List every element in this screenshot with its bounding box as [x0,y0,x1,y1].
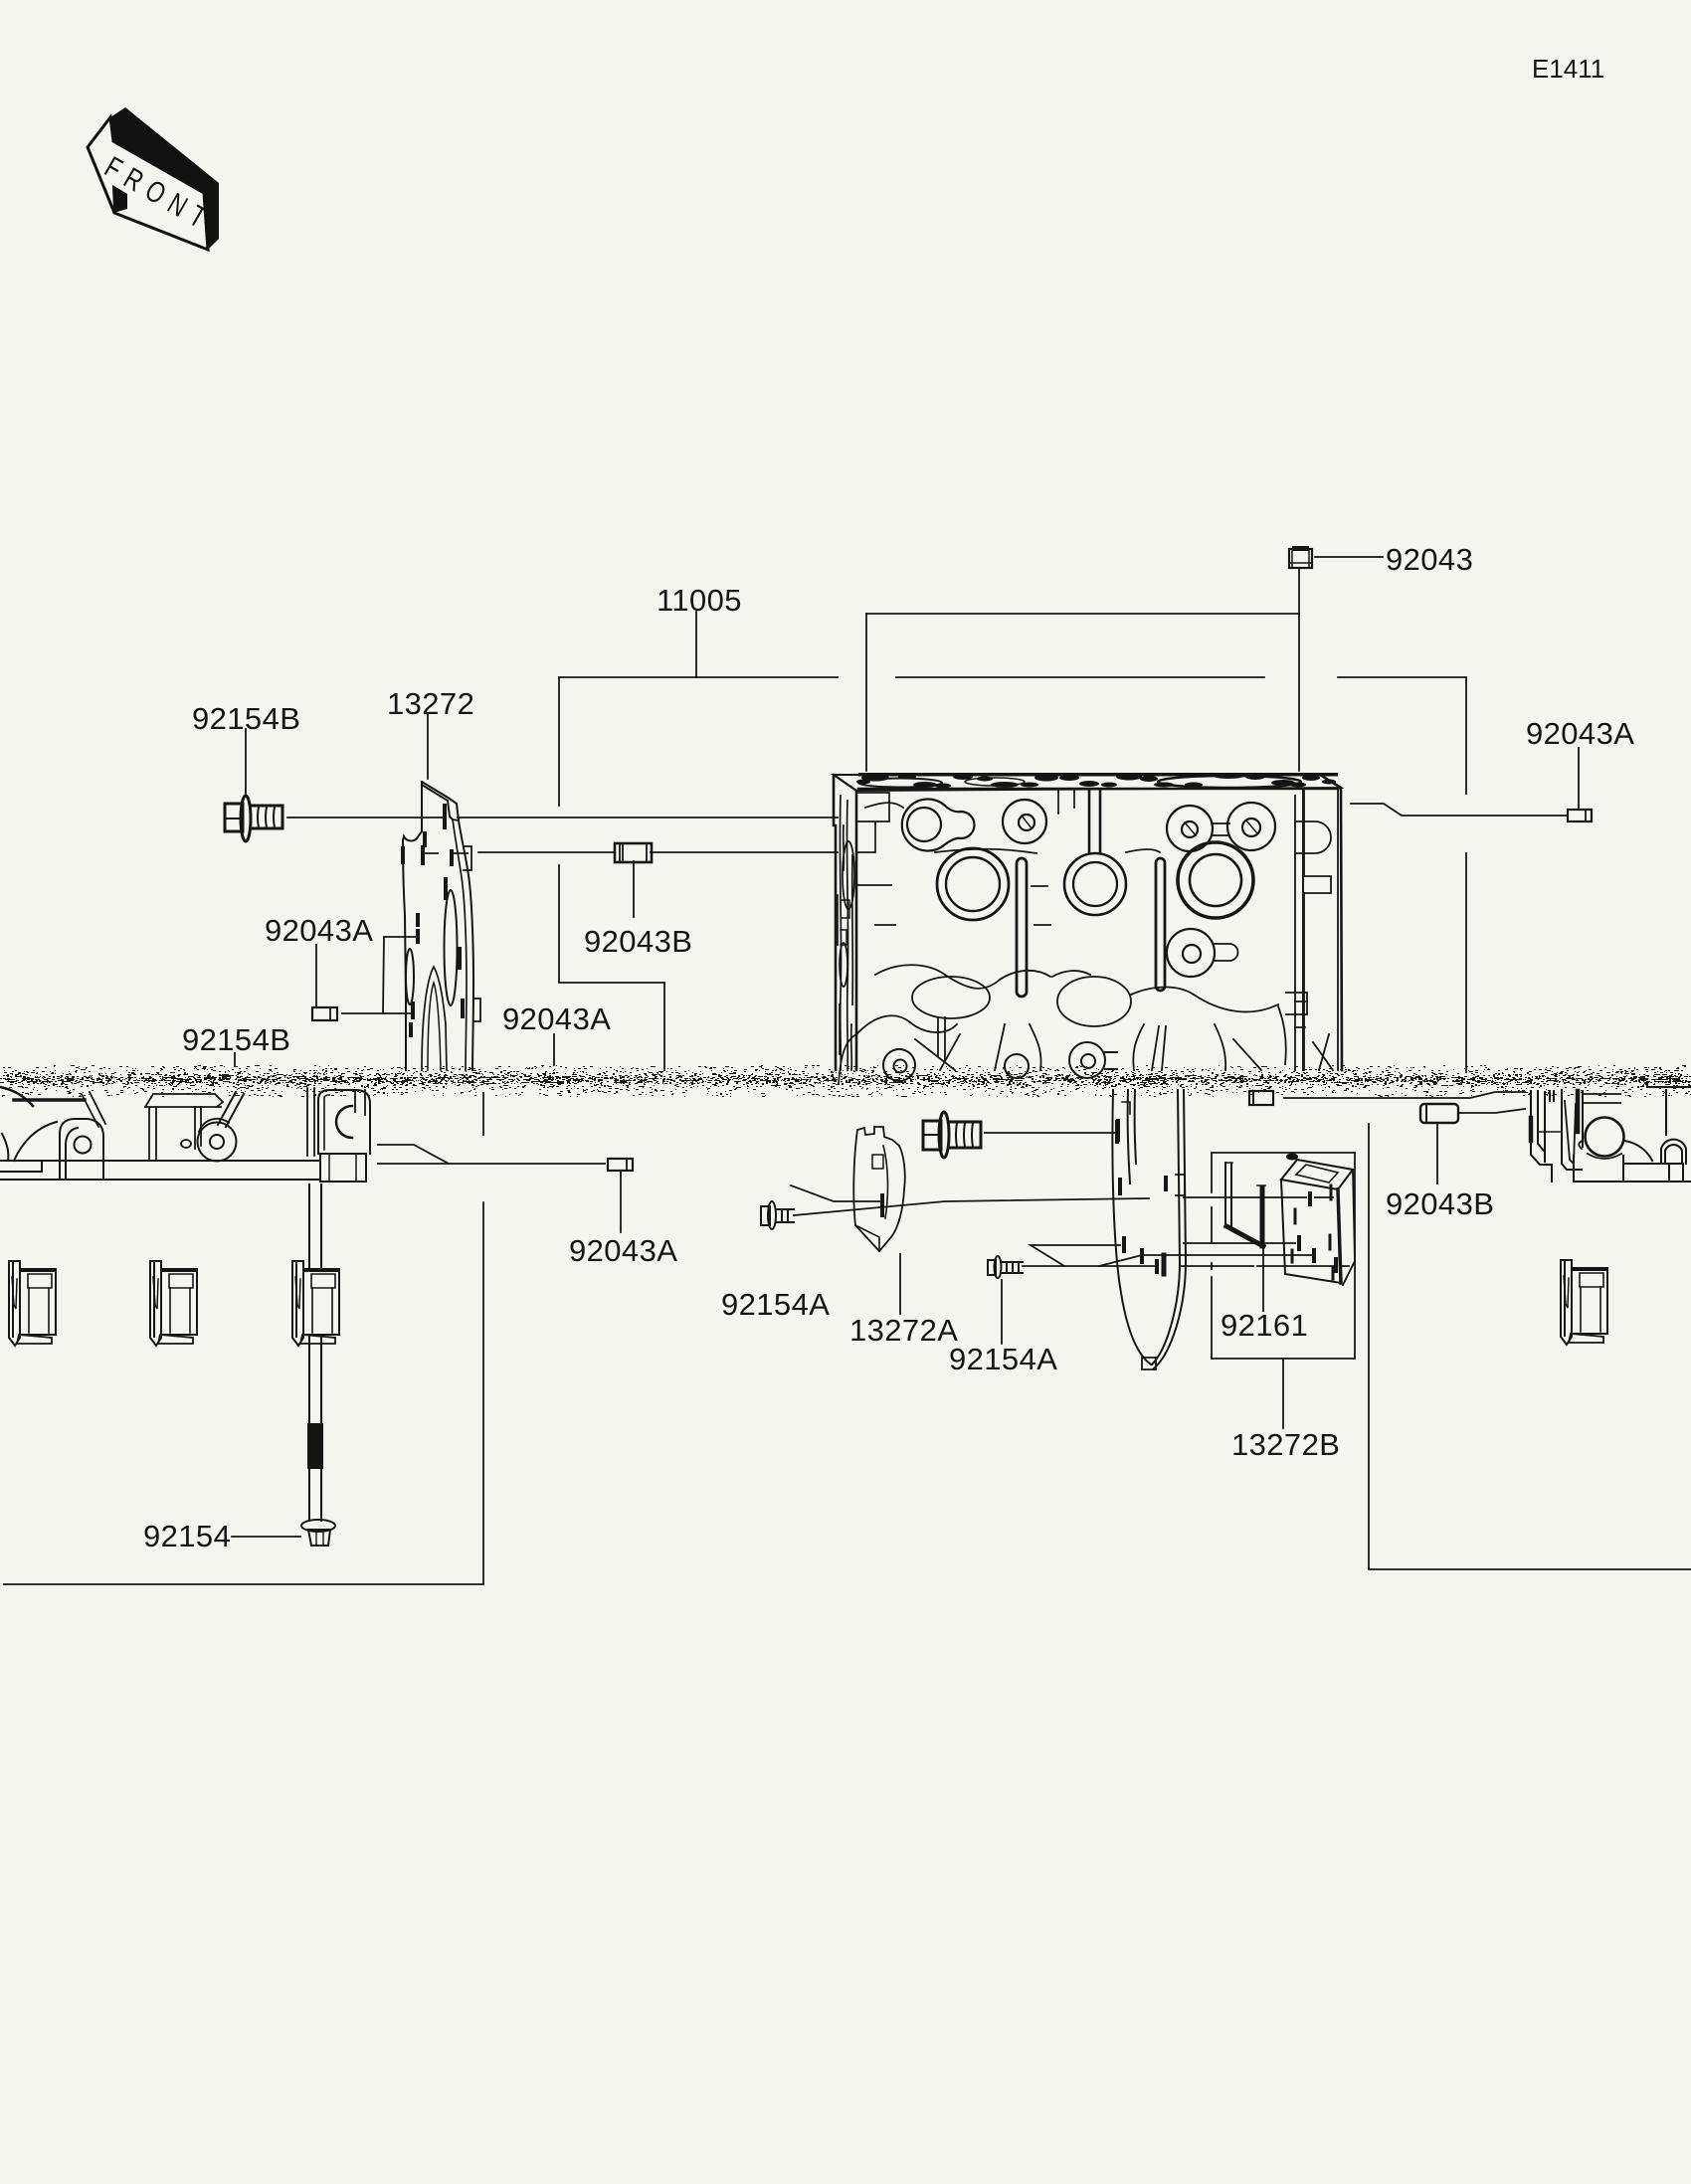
svg-text:11005: 11005 [657,583,742,618]
svg-text:92043: 92043 [1386,542,1473,577]
svg-text:13272: 13272 [387,686,474,721]
svg-text:92043A: 92043A [265,913,373,948]
svg-text:92154A: 92154A [949,1342,1057,1376]
svg-text:13272A: 13272A [849,1313,958,1348]
svg-text:92043A: 92043A [502,1001,611,1036]
svg-text:92154B: 92154B [182,1022,290,1057]
svg-text:92043A: 92043A [569,1233,677,1268]
svg-text:92043B: 92043B [584,924,692,959]
svg-text:92043B: 92043B [1386,1186,1494,1221]
svg-text:92161: 92161 [1221,1308,1308,1343]
svg-text:E1411: E1411 [1532,54,1604,84]
svg-text:13272B: 13272B [1231,1427,1340,1462]
svg-text:92154A: 92154A [721,1287,830,1322]
svg-text:92154: 92154 [143,1519,231,1553]
svg-text:92043A: 92043A [1526,716,1634,751]
